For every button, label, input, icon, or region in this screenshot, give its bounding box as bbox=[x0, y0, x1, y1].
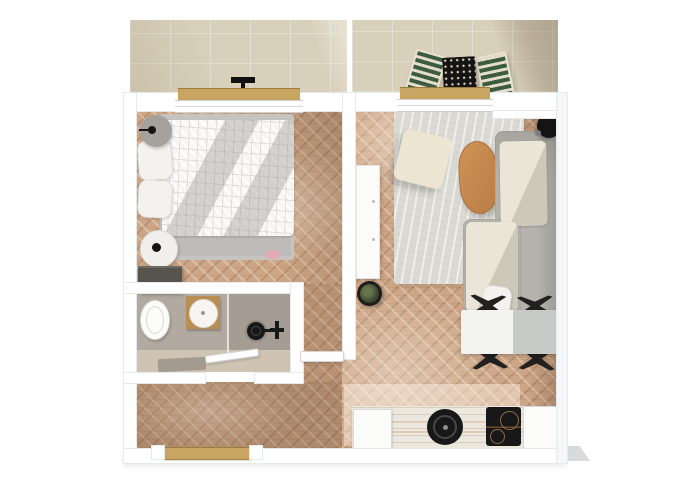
entrance-door-sill bbox=[163, 447, 251, 460]
basin-drain bbox=[201, 311, 205, 315]
shower-head bbox=[247, 322, 265, 340]
toilet-bowl bbox=[146, 306, 164, 334]
table-lamp-top bbox=[148, 126, 156, 134]
table-lamp-bottom bbox=[152, 243, 161, 252]
plant-leaves bbox=[360, 284, 379, 303]
bed-pillow-bottom bbox=[137, 179, 173, 219]
wall-divider-center bbox=[342, 92, 356, 360]
wall-bathroom-bottom-right bbox=[254, 372, 304, 384]
bed-duvet bbox=[162, 120, 294, 236]
kitchen-sink bbox=[427, 409, 463, 445]
shower-head-ring bbox=[251, 326, 261, 336]
cooktop-burner-small bbox=[490, 429, 505, 444]
wall-left bbox=[123, 92, 137, 464]
sink-drain bbox=[443, 425, 448, 430]
bedroom-door bbox=[300, 351, 344, 362]
toilet bbox=[140, 300, 170, 340]
wall-bedroom-bathroom bbox=[123, 282, 304, 294]
shower-mixer-horizontal bbox=[270, 328, 284, 332]
wall-top-right-notch bbox=[492, 110, 558, 119]
wardrobe-cabinet bbox=[356, 165, 380, 279]
wall-right bbox=[556, 92, 568, 464]
entrance-door-frame-left bbox=[151, 445, 165, 460]
sofa-cushion-main bbox=[499, 141, 547, 227]
balcony-door-left-frame bbox=[175, 100, 303, 113]
bedroom-corridor-floor bbox=[304, 284, 342, 382]
floor-plan bbox=[0, 0, 700, 500]
dining-table bbox=[461, 310, 561, 354]
balcony-door-right-frame bbox=[397, 99, 493, 112]
wall-bathroom-bottom-left bbox=[123, 372, 206, 384]
plant-pot bbox=[357, 281, 382, 306]
kitchen-cabinet-left bbox=[353, 409, 392, 452]
wall-bathroom-right bbox=[290, 282, 304, 384]
cooktop-burner-large bbox=[500, 411, 519, 430]
cooktop bbox=[486, 407, 521, 446]
slippers bbox=[266, 250, 279, 259]
entrance-door-frame-right bbox=[249, 445, 263, 460]
bath-mat bbox=[158, 357, 207, 372]
room-hallway-floor bbox=[137, 382, 342, 448]
shower-glass-partition bbox=[227, 294, 229, 356]
nightstand-top bbox=[140, 115, 172, 147]
